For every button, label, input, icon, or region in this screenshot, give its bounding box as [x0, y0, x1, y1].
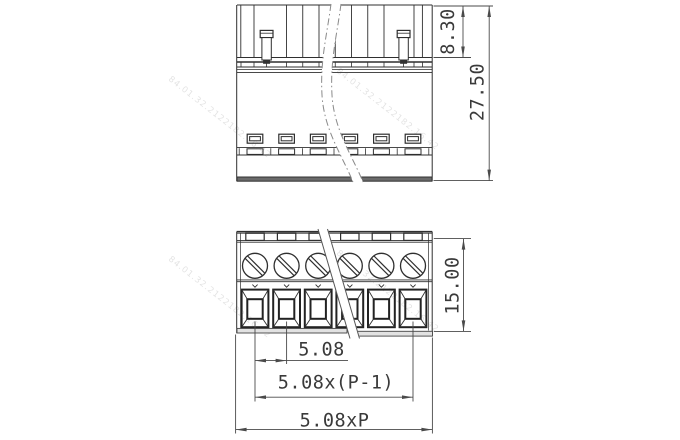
break-mask	[318, 229, 360, 339]
dim-arrow-icon	[487, 170, 491, 181]
front-view-base-left	[237, 328, 347, 333]
front-top-tabs	[246, 233, 422, 240]
front-top-tab	[372, 233, 390, 240]
cell-notch-mark	[284, 285, 289, 288]
dim-arrow-icon	[462, 239, 466, 250]
cell-inner-opening	[374, 299, 389, 319]
front-view	[237, 229, 433, 339]
lock-tab	[405, 149, 421, 155]
front-top-tab	[341, 233, 359, 240]
wire-slot-inner	[281, 137, 292, 141]
screw-circle	[243, 253, 268, 278]
front-top-tab	[277, 233, 295, 240]
dim-arrow-icon	[461, 6, 465, 17]
dim-arrow-icon	[402, 395, 413, 399]
dim-label-27-50: 27.50	[467, 63, 488, 121]
front-top-tab	[246, 233, 264, 240]
dim-arrow-icon	[255, 395, 266, 399]
dim-label-8-30: 8.30	[438, 8, 459, 55]
top-view	[237, 4, 433, 182]
latch-pin-body	[262, 38, 271, 60]
dimensions: 8.30 27.50 15.00 5.08 5.08x(P-1) 5.08xP	[236, 6, 493, 434]
front-top-tab	[404, 233, 422, 240]
screw-head	[274, 253, 299, 278]
cell-notch-mark	[347, 285, 352, 288]
wire-slot-inner	[313, 137, 324, 141]
terminal-cell	[273, 285, 300, 328]
drawing-canvas: 84.01.32.2122182.16.42 84.01.32.2122182.…	[0, 0, 680, 440]
latch-pin-cap	[397, 30, 410, 37]
screw-head	[401, 253, 426, 278]
screw-circle	[274, 253, 299, 278]
top-view-base	[237, 177, 432, 181]
cell-notch-mark	[410, 285, 415, 288]
cell-notch-mark	[252, 285, 257, 288]
wire-slot-inner	[376, 137, 387, 141]
screw-circle	[369, 253, 394, 278]
cell-inner-opening	[311, 299, 326, 319]
dim-label-15-00: 15.00	[442, 256, 463, 314]
latch-pin-cap	[260, 30, 273, 37]
lock-tab	[279, 149, 295, 155]
dim-label-5-08: 5.08	[298, 340, 345, 361]
screw-head	[243, 253, 268, 278]
terminal-cells	[242, 285, 427, 328]
screw-head	[369, 253, 394, 278]
dim-arrow-icon	[236, 428, 247, 432]
lock-tab	[373, 149, 389, 155]
front-view-base-right	[352, 331, 433, 336]
dim-arrow-icon	[276, 359, 287, 363]
cell-inner-opening	[279, 299, 294, 319]
terminal-cell	[305, 285, 332, 328]
dim-arrow-icon	[462, 320, 466, 331]
latch-pin-body	[399, 38, 408, 60]
latch-pin	[260, 30, 273, 63]
latch-pin	[397, 30, 410, 63]
dim-label-5-08-p: 5.08xP	[300, 411, 370, 432]
latch-pin-foot	[263, 60, 270, 64]
dim-arrow-icon	[487, 6, 491, 17]
dim-arrow-icon	[421, 428, 432, 432]
watermark-text: 84.01.32.2122182.16.42	[334, 66, 441, 152]
front-view-break	[318, 229, 360, 339]
dim-label-5-08-p1: 5.08x(P-1)	[278, 373, 394, 394]
dim-arrow-icon	[461, 47, 465, 58]
dim-arrow-icon	[255, 359, 266, 363]
lock-tab	[310, 149, 326, 155]
break-line	[318, 229, 350, 339]
screw-circle	[401, 253, 426, 278]
technical-drawing: 84.01.32.2122182.16.42 84.01.32.2122182.…	[0, 0, 680, 440]
wire-slot-inner	[344, 137, 355, 141]
latch-pin-foot	[400, 60, 407, 64]
cell-notch-mark	[316, 285, 321, 288]
